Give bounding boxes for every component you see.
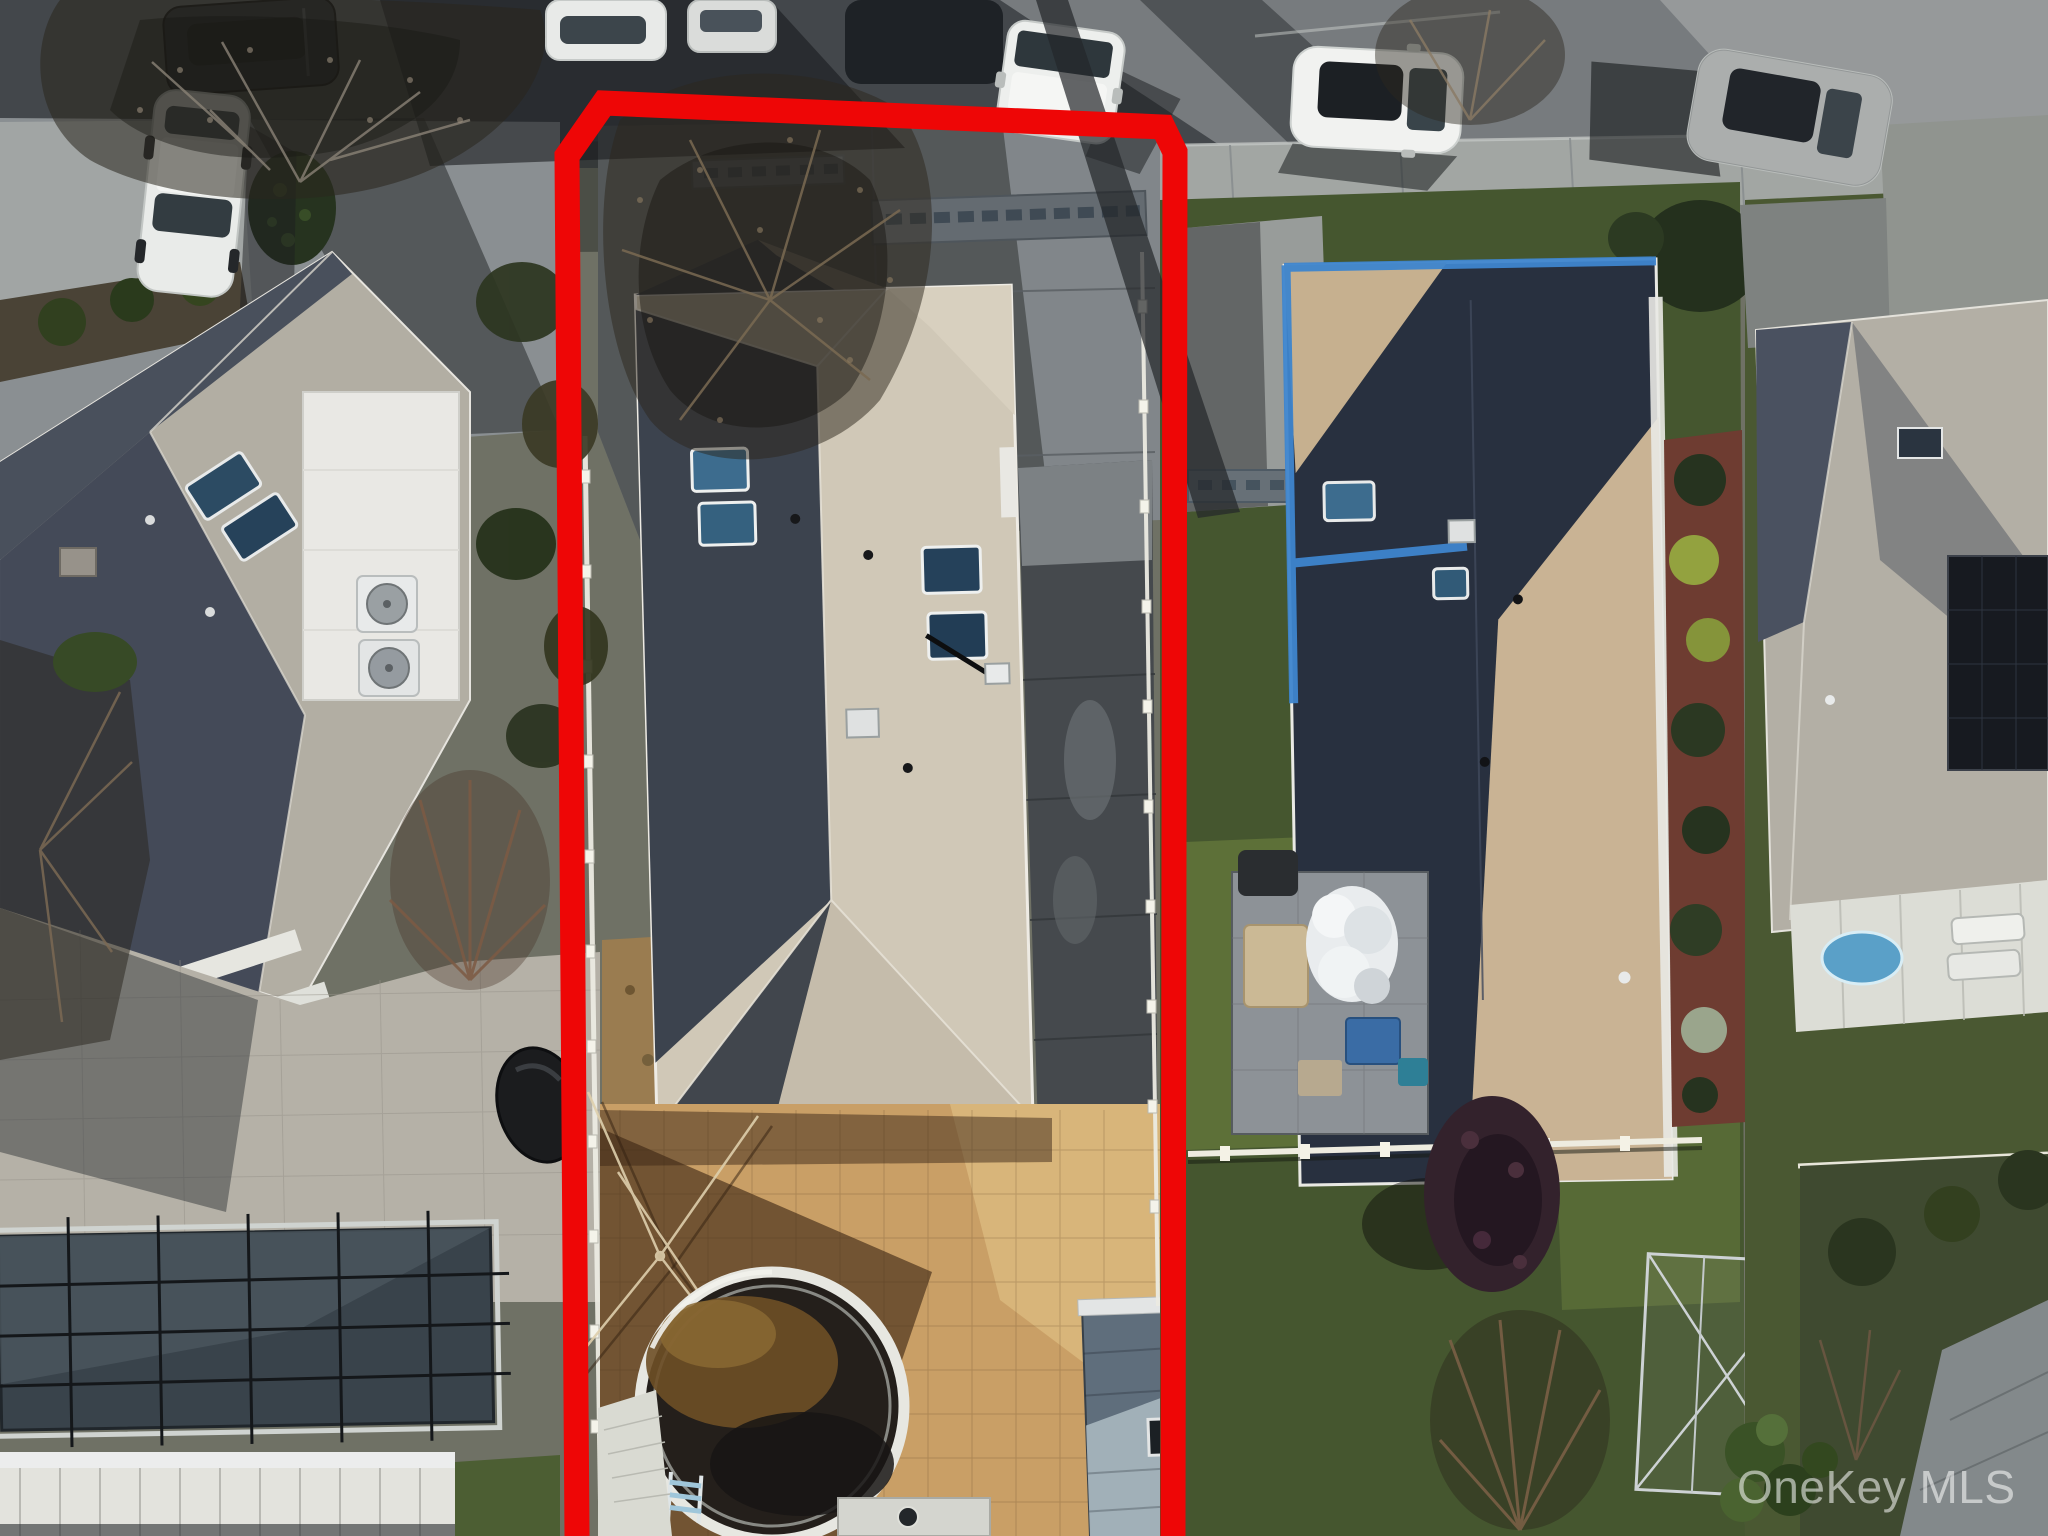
- side-walkway: [1018, 460, 1158, 1196]
- watermark-text: OneKey MLS: [1737, 1461, 2016, 1513]
- plum-tree: [1424, 1096, 1560, 1292]
- left-roof-vent-1: [145, 515, 155, 525]
- left-pergola: [0, 1452, 455, 1536]
- patio-tan-seat: [1244, 925, 1308, 1007]
- right-rear-patio: [1232, 850, 1428, 1134]
- right-property: [1160, 182, 1818, 1536]
- center-skylight-2: [699, 502, 756, 545]
- outbuilding-vent: [898, 1507, 918, 1527]
- blue-storage-bin: [1346, 1018, 1400, 1064]
- right-skylight-1: [1324, 482, 1375, 521]
- solar-panel: [1948, 556, 2048, 770]
- far-roof-vent: [1825, 695, 1835, 705]
- far-right-house: [1756, 300, 2048, 932]
- lounge-chair-1: [1951, 914, 2025, 945]
- beige-box: [1298, 1060, 1342, 1096]
- side-walkway-lit: [1018, 460, 1152, 566]
- roof-vent-box: [846, 709, 879, 738]
- far-right-porch: [1790, 880, 2048, 1032]
- far-right-property: [1740, 115, 2048, 1536]
- left-lawn-wedge: [455, 1455, 560, 1536]
- bare-shrub-bottom-group: [1430, 1310, 1610, 1530]
- mulch-bed: [1664, 430, 1747, 1127]
- far-skylight: [1898, 428, 1942, 458]
- walkway-stain-1: [1064, 700, 1116, 820]
- right-roof-vent-box: [1449, 520, 1475, 542]
- left-chimney: [60, 548, 96, 576]
- right-skylight-2: [1433, 568, 1468, 599]
- aerial-photo: OneKey MLS: [0, 0, 2048, 1536]
- center-skylight-3: [922, 546, 981, 594]
- left-ac-unit-1: [357, 576, 417, 632]
- roof-edge-step: [999, 447, 1017, 517]
- green-bush-left: [53, 632, 137, 692]
- left-roof-vent-2: [205, 607, 215, 617]
- lounge-chair-2: [1947, 950, 2021, 981]
- teal-bin: [1398, 1058, 1428, 1086]
- white-compact-glass: [700, 10, 762, 32]
- small-outbuilding: [838, 1498, 990, 1536]
- left-covered-pool: [0, 1209, 512, 1448]
- left-ac-unit-2: [359, 640, 419, 696]
- walkway-stain-2: [1053, 856, 1097, 944]
- antenna-mount: [985, 663, 1010, 684]
- blue-kiddie-pool: [1822, 932, 1902, 984]
- bare-shrub-left-group: [390, 770, 550, 990]
- patio-grill: [1238, 850, 1298, 896]
- front-hedge-small: [1608, 212, 1664, 264]
- white-sedan-top: [546, 0, 666, 60]
- dark-car-under-tree: [845, 0, 1003, 84]
